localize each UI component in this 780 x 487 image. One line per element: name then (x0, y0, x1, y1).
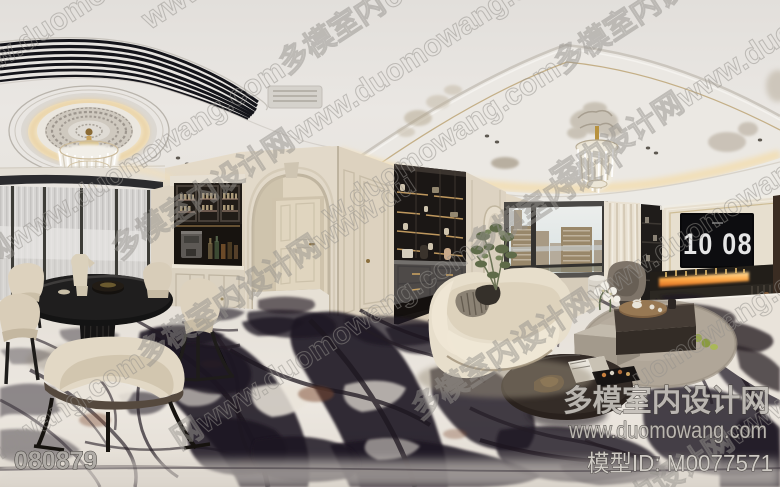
svg-text:多模室内设计网: 多模室内设计网 (563, 384, 770, 418)
svg-text:模型ID: M0077571: 模型ID: M0077571 (587, 450, 773, 476)
svg-text:www.duomowang.com: www.duomowang.com (568, 417, 767, 443)
svg-text:080879: 080879 (14, 447, 97, 475)
